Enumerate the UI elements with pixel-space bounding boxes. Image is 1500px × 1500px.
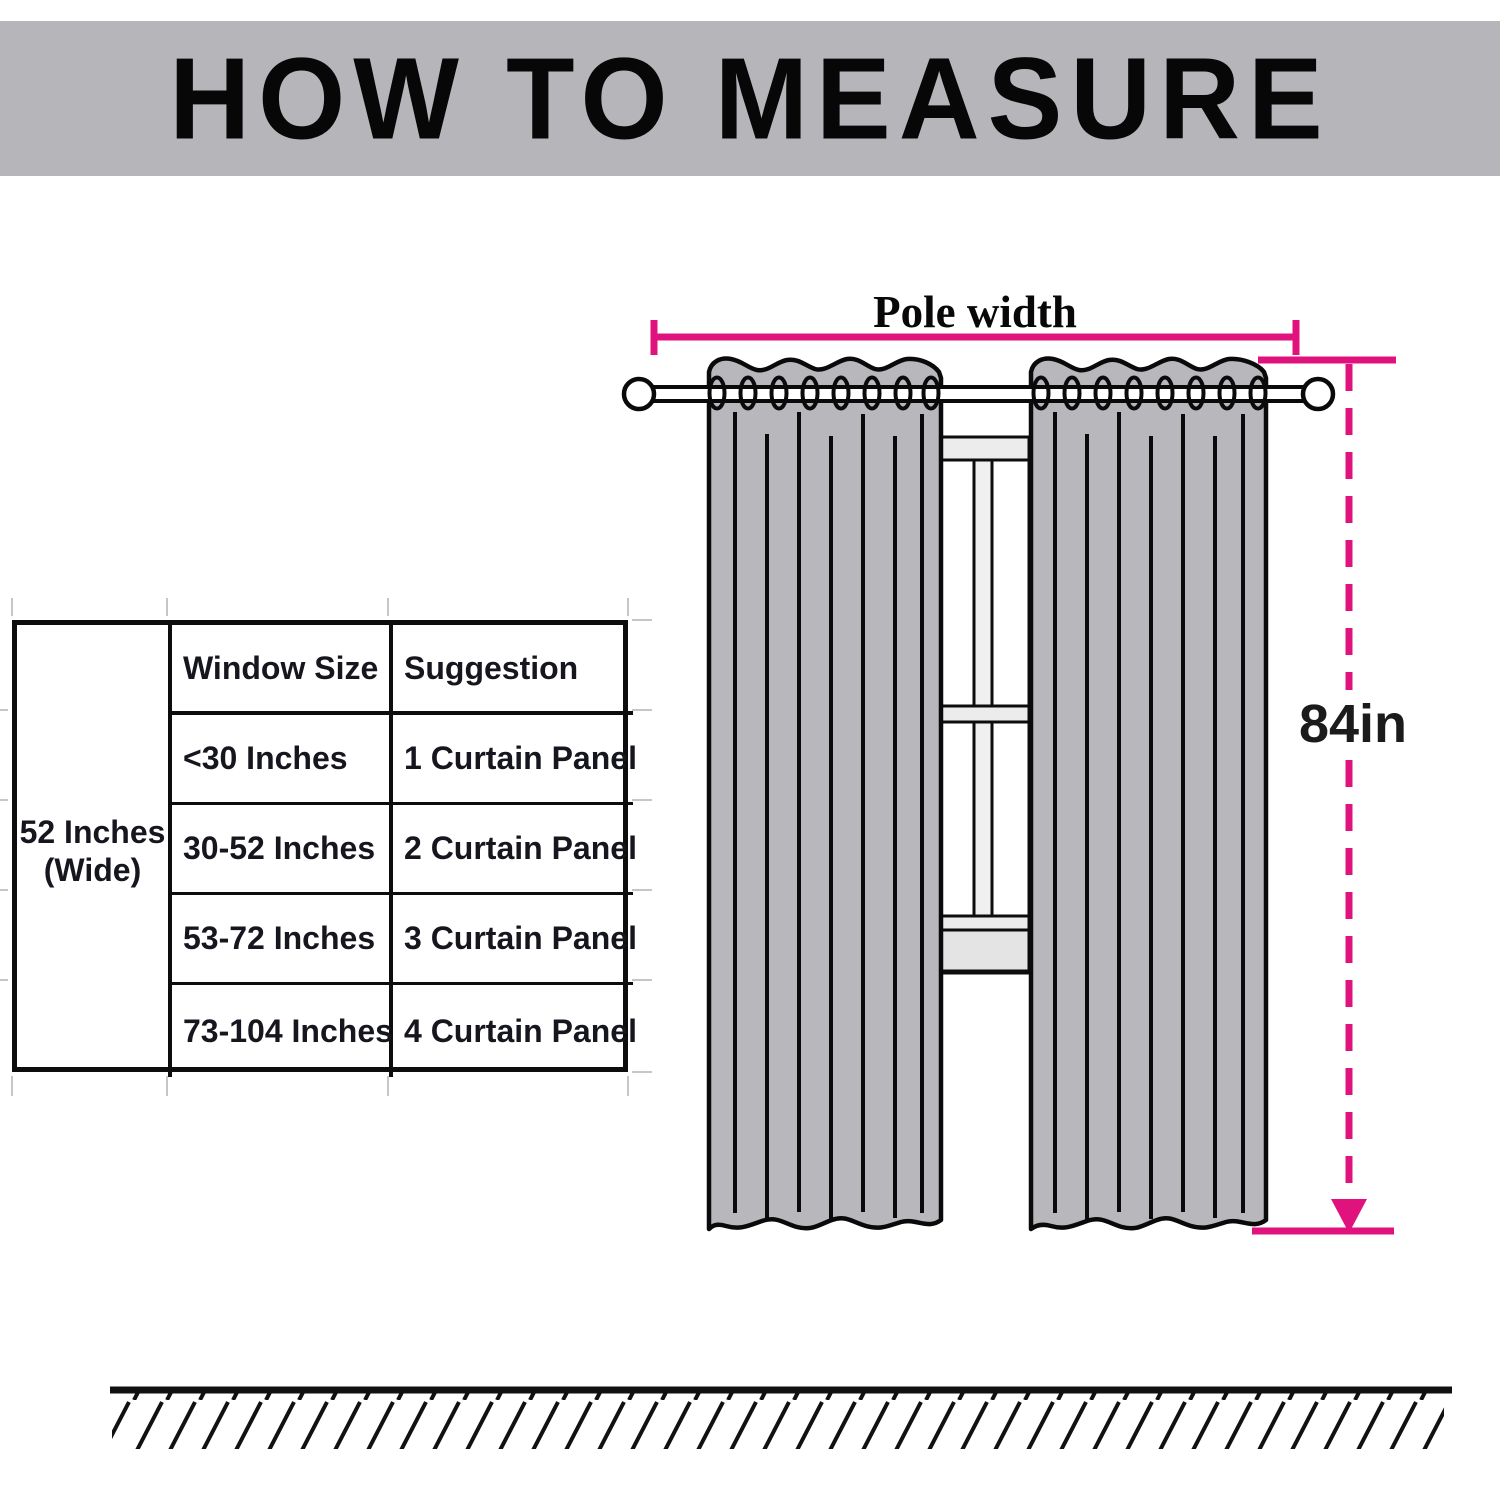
table-row-window-size: 53-72 Inches [172, 895, 393, 985]
table-row-suggestion: 2 Curtain Panel [393, 805, 633, 895]
window-cross-mullion [937, 706, 1029, 722]
table-row-window-size: 30-52 Inches [172, 805, 393, 895]
left-finial [624, 379, 654, 409]
column-header-suggestion: Suggestion [393, 625, 633, 715]
height-measure [1252, 360, 1419, 1233]
curtain-width-line2: (Wide) [44, 851, 141, 889]
pole-width-label: Pole width [873, 287, 1077, 337]
ground-hatch [110, 1390, 1452, 1449]
height-label: 84in [1299, 694, 1407, 754]
size-suggestion-table: 52 Inches (Wide) Window Size Suggestion … [12, 620, 628, 1072]
table-row-window-size: 73-104 Inches [172, 985, 393, 1077]
how-to-measure-infographic: { "header": { "title": "HOW TO MEASURE" … [0, 0, 1500, 1500]
window-sill [937, 930, 1029, 971]
curtain-width-line1: 52 Inches [20, 813, 166, 851]
window-sill-top [937, 916, 1029, 930]
column-header-window-size: Window Size [172, 625, 393, 715]
table-row-suggestion: 1 Curtain Panel [393, 715, 633, 805]
page-title: HOW TO MEASURE [169, 31, 1331, 165]
header-banner: HOW TO MEASURE [0, 21, 1500, 176]
table-row-window-size: <30 Inches [172, 715, 393, 805]
right-curtain-panel [1031, 359, 1266, 1229]
left-curtain-panel [709, 359, 941, 1229]
table-row-suggestion: 4 Curtain Panel [393, 985, 633, 1077]
window-frame [937, 437, 1029, 973]
right-finial [1303, 379, 1333, 409]
curtain-width-cell: 52 Inches (Wide) [17, 625, 172, 1077]
table-row-suggestion: 3 Curtain Panel [393, 895, 633, 985]
window-lintel [937, 437, 1029, 460]
